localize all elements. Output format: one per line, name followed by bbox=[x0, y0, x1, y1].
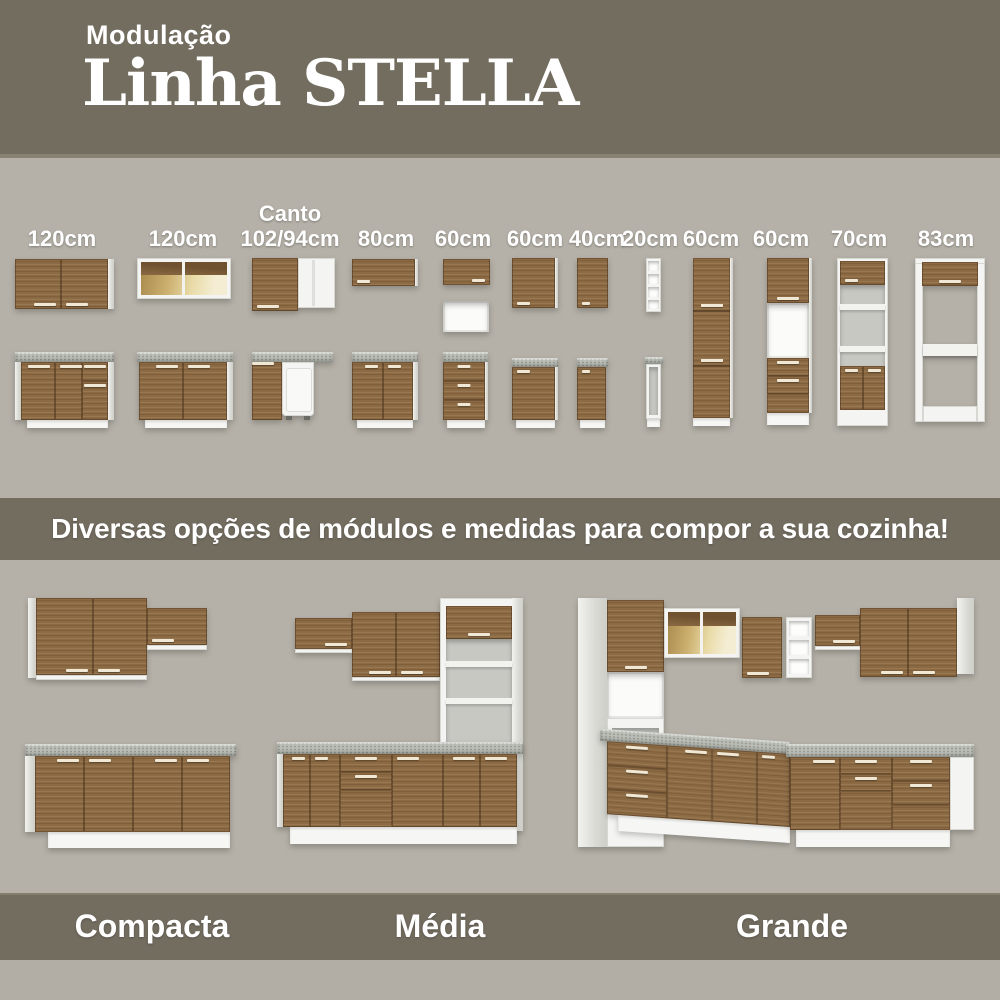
cabinet-door bbox=[767, 258, 809, 303]
countertop bbox=[443, 352, 488, 362]
wall-cabinet-40 bbox=[577, 258, 608, 308]
drawer-front bbox=[443, 400, 485, 420]
drawer-front bbox=[840, 774, 892, 791]
cabinet-door bbox=[183, 362, 227, 420]
oven-niche bbox=[607, 672, 664, 718]
plinth bbox=[447, 420, 485, 428]
plinth bbox=[580, 420, 605, 428]
size-label: 80cm bbox=[358, 226, 414, 252]
drawer-front bbox=[892, 781, 950, 805]
cabinet-door bbox=[922, 262, 978, 286]
glass-mullion bbox=[700, 612, 703, 654]
shelf-cell bbox=[648, 274, 659, 284]
cabinet-side bbox=[730, 258, 733, 418]
base-cabinet-40 bbox=[577, 358, 608, 428]
cabinet-side bbox=[227, 362, 233, 420]
cabinet-door bbox=[35, 756, 84, 832]
drawer-front bbox=[340, 790, 392, 827]
cabinet-door bbox=[446, 606, 512, 639]
wall-cabinet-group bbox=[815, 615, 974, 678]
cabinet-door bbox=[295, 618, 352, 649]
oven-niche bbox=[767, 303, 809, 358]
plinth bbox=[357, 420, 413, 428]
shelf-tower-20 bbox=[646, 258, 661, 312]
drawer-front bbox=[607, 789, 667, 818]
cabinet-door bbox=[860, 608, 908, 677]
frame-bottom bbox=[923, 406, 977, 422]
kitchen-label-media: Média bbox=[395, 908, 486, 945]
countertop bbox=[252, 352, 333, 362]
countertop bbox=[137, 352, 233, 362]
shelf-cell bbox=[789, 640, 809, 655]
base-run-right bbox=[786, 744, 974, 848]
wall-cabinet-60 bbox=[512, 258, 558, 308]
kitchen-label-grande: Grande bbox=[736, 908, 848, 945]
cabinet-bottom bbox=[352, 677, 440, 681]
open-cavity bbox=[840, 285, 885, 366]
countertop bbox=[786, 744, 974, 757]
cabinet-door bbox=[55, 362, 82, 420]
page-title: Linha STELLA bbox=[82, 46, 578, 121]
shelf-cell bbox=[648, 287, 659, 297]
wall-cabinet-120 bbox=[15, 259, 114, 309]
kitchen-label-compacta: Compacta bbox=[75, 908, 230, 945]
cabinet-bottom bbox=[815, 646, 860, 650]
bottom-strip bbox=[0, 960, 1000, 1000]
size-label: 60cm bbox=[753, 226, 809, 252]
cabinet-door bbox=[863, 366, 885, 410]
cabinet-door bbox=[396, 612, 440, 677]
corner-base-cabinet bbox=[252, 352, 333, 428]
corner-panel bbox=[298, 258, 335, 308]
door-inset bbox=[286, 368, 312, 412]
wall-cabinet-group bbox=[28, 598, 207, 680]
cabinet-bottom bbox=[36, 675, 147, 680]
plinth bbox=[516, 420, 555, 428]
cabinet-side bbox=[415, 259, 418, 286]
wall-cabinet bbox=[742, 617, 782, 678]
cabinet-door bbox=[840, 261, 885, 285]
cabinet-door bbox=[908, 608, 957, 677]
countertop bbox=[577, 358, 608, 367]
drawer-front bbox=[443, 362, 485, 381]
base-cabinet-run bbox=[277, 742, 523, 846]
pantry-front bbox=[693, 258, 730, 418]
wall-cabinet-group bbox=[295, 612, 440, 682]
cabinet-door bbox=[147, 608, 207, 645]
cabinet-side bbox=[108, 362, 114, 420]
cabinet-door bbox=[443, 754, 480, 827]
plinth bbox=[647, 419, 660, 427]
open-niche-60 bbox=[443, 301, 489, 332]
countertop bbox=[352, 352, 418, 362]
glass-wall-cabinet bbox=[664, 608, 740, 658]
wall-cabinet-60 bbox=[443, 259, 490, 285]
glass-wall-cabinet-120 bbox=[137, 258, 231, 299]
cabinet-door bbox=[61, 259, 108, 309]
size-label: 60cm bbox=[507, 226, 563, 252]
plinth bbox=[767, 413, 809, 425]
plinth bbox=[693, 418, 730, 426]
drawer-front bbox=[840, 791, 892, 830]
shelf-cell bbox=[789, 621, 809, 636]
cabinet-side bbox=[25, 756, 35, 832]
plinth bbox=[796, 830, 950, 847]
cabinet-door bbox=[577, 367, 606, 420]
shelf bbox=[446, 661, 512, 667]
cabinet-door bbox=[252, 362, 282, 420]
plinth bbox=[48, 832, 230, 848]
cabinet-door bbox=[815, 615, 860, 646]
door-handle bbox=[701, 304, 723, 307]
end-panel bbox=[950, 757, 974, 830]
cabinet-side bbox=[28, 598, 36, 678]
door-handle bbox=[701, 359, 723, 362]
cabinet-door bbox=[352, 259, 415, 286]
glass-mullion bbox=[182, 262, 185, 295]
promo-image: Modulação Linha STELLA 120cm 120cm Canto… bbox=[0, 0, 1000, 1000]
base-cabinet-80 bbox=[352, 352, 418, 428]
size-label: 20cm bbox=[622, 226, 678, 252]
base-cabinet-120 bbox=[15, 352, 114, 428]
cabinet-door bbox=[790, 757, 840, 830]
size-label: 102/94cm bbox=[240, 226, 339, 252]
drawer-front bbox=[892, 805, 950, 830]
door-gap bbox=[693, 310, 730, 312]
drawer-front bbox=[443, 381, 485, 400]
countertop bbox=[645, 357, 663, 364]
shelf bbox=[840, 346, 885, 352]
size-label: 83cm bbox=[918, 226, 974, 252]
cabinet-door bbox=[139, 362, 183, 420]
cabinet-door bbox=[480, 754, 517, 827]
cabinet-door bbox=[383, 362, 413, 420]
drawer-base-60 bbox=[443, 352, 488, 428]
cabinet-door bbox=[607, 600, 664, 672]
cabinet-door bbox=[352, 612, 396, 677]
corner-wall-cabinet bbox=[252, 258, 335, 311]
plinth bbox=[27, 420, 108, 428]
base-cabinet-60 bbox=[512, 358, 558, 428]
plinth bbox=[290, 827, 517, 844]
cabinet-side bbox=[809, 258, 812, 413]
cabinet-door bbox=[352, 362, 383, 420]
divider-band: Diversas opções de módulos e medidas par… bbox=[0, 498, 1000, 560]
cabinet-side bbox=[555, 258, 558, 308]
cabinet-door bbox=[512, 258, 555, 308]
base-cabinet-run bbox=[25, 744, 236, 850]
cabinet-door bbox=[15, 259, 61, 309]
header-band: Modulação Linha STELLA bbox=[0, 0, 1000, 158]
cabinet-door bbox=[133, 756, 182, 832]
cabinet-bottom bbox=[295, 649, 352, 653]
drawer-front bbox=[82, 381, 108, 420]
frame-column bbox=[977, 258, 985, 422]
size-label: 120cm bbox=[149, 226, 218, 252]
open-base-20 bbox=[645, 357, 663, 427]
size-label: 120cm bbox=[28, 226, 97, 252]
cabinet-door bbox=[252, 258, 298, 311]
cabinet-door bbox=[840, 366, 863, 410]
cabinet-door bbox=[512, 367, 555, 420]
cabinet-door bbox=[84, 756, 133, 832]
oven-tower-60 bbox=[767, 258, 812, 425]
divider-text: Diversas opções de módulos e medidas par… bbox=[51, 513, 949, 545]
drawer-front bbox=[840, 757, 892, 774]
tall-pantry-60 bbox=[693, 258, 733, 426]
size-label: 60cm bbox=[683, 226, 739, 252]
cabinet-bottom bbox=[147, 645, 207, 650]
base-run-left bbox=[600, 729, 790, 847]
size-label: 70cm bbox=[831, 226, 887, 252]
drawer-front bbox=[340, 772, 392, 790]
door-gap bbox=[693, 365, 730, 367]
shelf bbox=[923, 344, 977, 356]
size-label: 40cm bbox=[569, 226, 625, 252]
cabinet-foot bbox=[304, 416, 310, 420]
drawer-front bbox=[340, 754, 392, 772]
cabinet-door bbox=[283, 754, 310, 827]
panel-edge bbox=[312, 260, 315, 306]
shelf-tower-70 bbox=[837, 258, 888, 426]
cabinet-door bbox=[392, 754, 443, 827]
countertop bbox=[512, 358, 558, 367]
drawer-front bbox=[767, 376, 809, 394]
cabinet-door bbox=[667, 745, 712, 821]
open-cavity bbox=[446, 639, 512, 752]
base-cabinet-120 bbox=[137, 352, 233, 428]
drawer-front bbox=[767, 358, 809, 376]
drawer-front bbox=[82, 362, 108, 381]
drawer-front bbox=[892, 757, 950, 781]
countertop bbox=[25, 744, 236, 756]
shelf bbox=[840, 304, 885, 310]
cabinet-door bbox=[93, 598, 147, 675]
size-label: Canto bbox=[259, 201, 321, 227]
countertop bbox=[277, 742, 523, 754]
cabinet-door bbox=[310, 754, 340, 827]
shelf-cell bbox=[789, 659, 809, 674]
fridge-surround-83 bbox=[915, 258, 985, 430]
corner-shelf-unit bbox=[786, 617, 812, 678]
wall-cabinet-80 bbox=[352, 259, 418, 286]
cabinet-side bbox=[108, 259, 114, 309]
size-label: 60cm bbox=[435, 226, 491, 252]
countertop bbox=[15, 352, 114, 362]
cabinet-door bbox=[36, 598, 93, 675]
cabinet-door bbox=[182, 756, 230, 832]
drawer-front bbox=[767, 394, 809, 413]
cabinet-side bbox=[555, 367, 558, 420]
cabinet-side bbox=[413, 362, 418, 420]
cabinet-side bbox=[15, 362, 21, 420]
cabinet-door bbox=[21, 362, 55, 420]
shelf-cell bbox=[648, 261, 659, 271]
cabinet-door bbox=[712, 749, 757, 825]
shelf-cell bbox=[648, 300, 659, 309]
cabinet-foot bbox=[286, 416, 292, 420]
open-cavity bbox=[649, 367, 658, 415]
cabinet-side bbox=[957, 598, 974, 674]
plinth bbox=[145, 420, 227, 428]
shelf bbox=[446, 698, 512, 704]
cabinet-side bbox=[485, 362, 488, 420]
